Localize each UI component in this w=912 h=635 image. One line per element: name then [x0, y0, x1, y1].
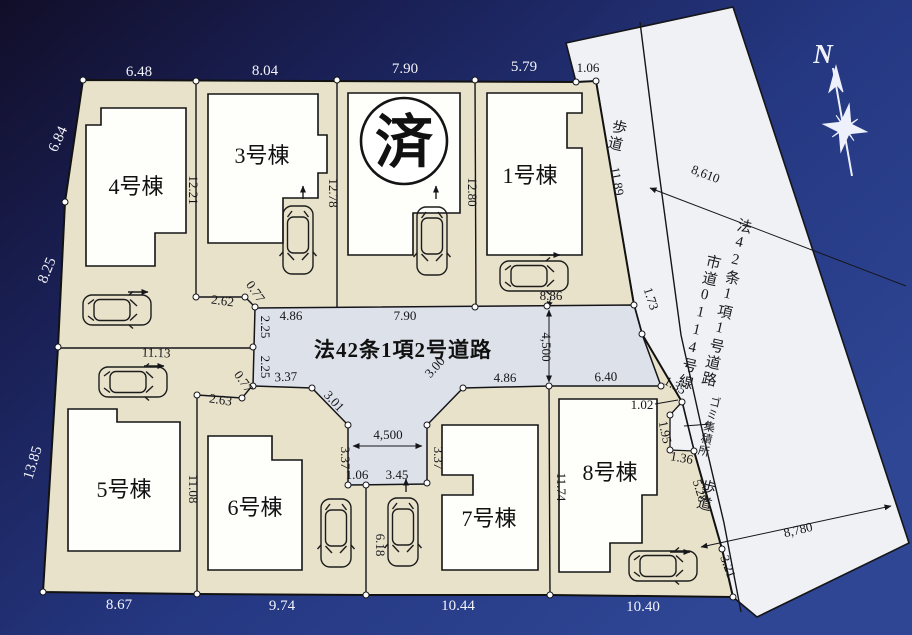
dim-top-4: 5.79 [511, 59, 537, 75]
dim-stub-3-45: 3.45 [386, 467, 409, 482]
label-building-5: 5号棟 [96, 477, 151, 502]
dim-bottom-1: 8.67 [106, 597, 133, 613]
dim-lot1-front: 8.86 [540, 288, 563, 303]
sold-mark: 済 [375, 110, 434, 175]
dim-road-6-40: 6.40 [594, 369, 617, 385]
dim-top-3: 7.90 [392, 61, 418, 77]
dim-lot3-depth: 12.78 [326, 178, 341, 207]
dim-jog-2-62: 2.62 [210, 292, 235, 310]
dim-bottom-2: 9.74 [269, 598, 296, 614]
dim-lot2-depth: 12.80 [465, 177, 480, 206]
label-road-center: 法42条1項2号道路 [314, 338, 492, 362]
dim-road-7-90: 7.90 [394, 308, 417, 323]
dim-top-5: 1.06 [577, 60, 600, 75]
dim-stub-1-06: 1.06 [346, 467, 369, 482]
dim-lot78-depth: 11.74 [554, 473, 569, 502]
label-building-7: 7号棟 [461, 506, 516, 531]
dim-road-width: 4,500 [539, 332, 554, 361]
dim-lot4-depth: 12.21 [186, 175, 201, 204]
site-plan: 済 [0, 0, 912, 635]
label-building-8: 8号棟 [582, 460, 637, 485]
label-building-1: 1号棟 [502, 163, 557, 188]
dim-road-4-86-e: 4.86 [494, 370, 517, 385]
dim-road-4-86-w: 4.86 [280, 308, 303, 323]
dim-top-1: 6.48 [126, 64, 152, 80]
dim-lot56-depth: 11.08 [186, 475, 201, 504]
dim-stub-side-e: 3.37 [431, 447, 446, 470]
label-building-4: 4号棟 [108, 174, 163, 199]
building-7 [442, 425, 538, 570]
dim-stub-width: 4,500 [373, 427, 402, 442]
dim-lot67-depth: 6.18 [373, 534, 388, 557]
dim-bottom-4: 10.40 [626, 599, 660, 615]
dim-road-3-37: 3.37 [274, 369, 298, 385]
dim-lot5-top: 11.13 [142, 345, 171, 361]
dim-bottom-3: 10.44 [441, 598, 475, 614]
dim-g-1-02: 1.02 [631, 397, 654, 412]
dim-road-2-25-a: 2.25 [258, 316, 273, 339]
dim-road-2-25-b: 2.25 [258, 356, 273, 379]
label-building-3: 3号棟 [234, 143, 289, 168]
site-plan-drawing: 済 [0, 0, 912, 635]
north-label: N [812, 39, 834, 69]
dim-top-2: 8.04 [252, 63, 279, 79]
label-building-6: 6号棟 [227, 495, 282, 520]
